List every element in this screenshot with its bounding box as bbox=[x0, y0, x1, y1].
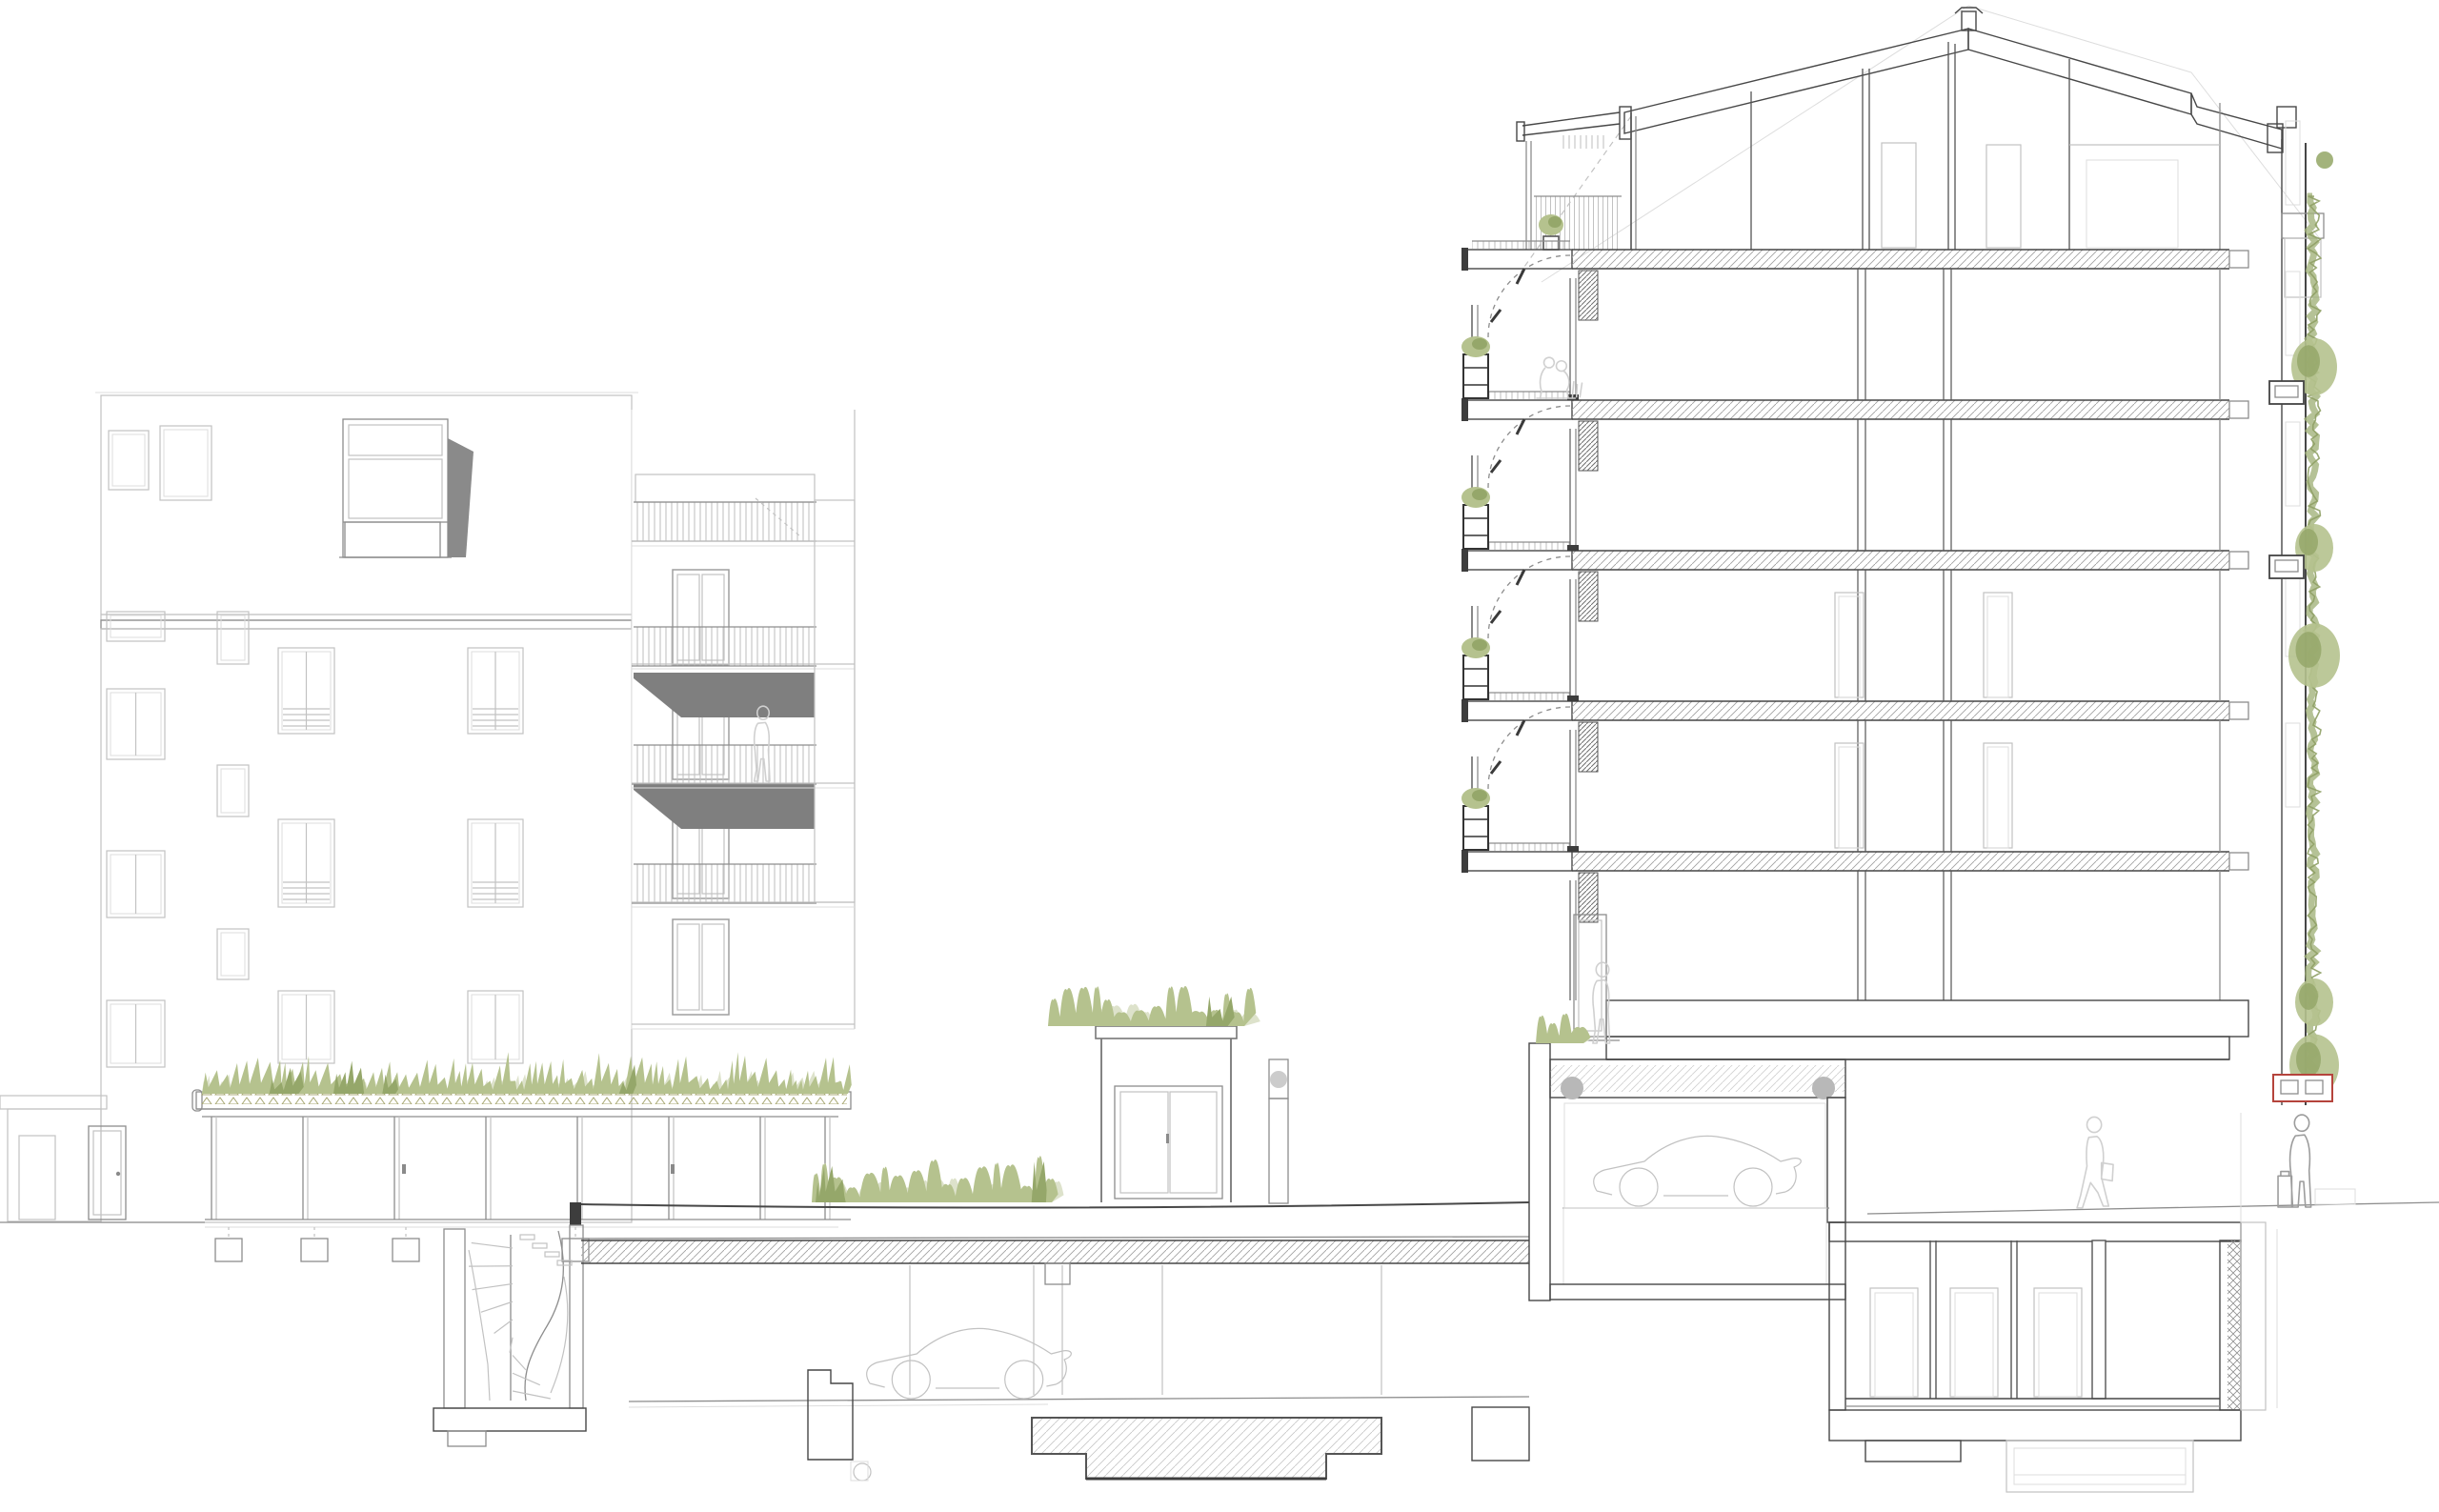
basement-door bbox=[1950, 1288, 1998, 1397]
entrance-annex bbox=[0, 1096, 205, 1222]
ridge-vent bbox=[1955, 8, 1983, 30]
roof-left-slope bbox=[1624, 29, 1968, 133]
balcony bbox=[1461, 255, 1579, 400]
deck-end-wall bbox=[1269, 1099, 1288, 1203]
window bbox=[468, 648, 523, 734]
basement-door bbox=[2034, 1288, 2082, 1397]
door-swing-arc bbox=[1488, 556, 1570, 638]
facade-window bbox=[2286, 723, 2300, 807]
garage-floor bbox=[629, 1397, 1529, 1401]
pad bbox=[301, 1239, 328, 1261]
terrace-canopy bbox=[1522, 112, 1620, 135]
ground-slab bbox=[1606, 1000, 2248, 1059]
building-section-drawing bbox=[0, 0, 2439, 1512]
entry-wall bbox=[1529, 1043, 1550, 1300]
shaft-wall-right bbox=[570, 1225, 583, 1408]
pad bbox=[393, 1239, 419, 1261]
window bbox=[278, 819, 334, 907]
right-facade bbox=[2282, 139, 2333, 1105]
bay-lower-room bbox=[1563, 1208, 1826, 1284]
pavilion-green-roof bbox=[202, 1052, 852, 1094]
new-building bbox=[1461, 6, 2333, 1300]
window bbox=[468, 991, 523, 1063]
attic-siding bbox=[101, 395, 632, 615]
door-swing-arc bbox=[1488, 707, 1570, 789]
window bbox=[107, 1000, 165, 1067]
interior-partitions bbox=[1835, 269, 2220, 1000]
cornice bbox=[101, 615, 632, 620]
facade-window bbox=[2286, 272, 2300, 355]
basement-right bbox=[1829, 1113, 2439, 1492]
car-on-lift bbox=[1594, 1136, 1802, 1206]
entry-planter-shrub bbox=[1536, 1014, 1591, 1043]
door-swing-arc bbox=[1488, 406, 1570, 488]
wing-railing bbox=[632, 745, 816, 784]
garden-room bbox=[1096, 1026, 1237, 1202]
people bbox=[755, 357, 2311, 1208]
garden-room-green-roof bbox=[1048, 986, 1260, 1026]
window bbox=[278, 648, 334, 734]
column bbox=[1579, 421, 1598, 471]
window bbox=[107, 612, 165, 641]
foundation-pad bbox=[1032, 1418, 1381, 1479]
entrance-door bbox=[89, 1126, 126, 1220]
column bbox=[1579, 722, 1598, 772]
annex-door bbox=[19, 1136, 55, 1220]
basement-wall-left bbox=[1829, 1222, 1845, 1410]
wing-railing bbox=[632, 502, 816, 541]
balcony bbox=[1461, 556, 1579, 701]
door-handle bbox=[116, 1172, 120, 1176]
garage-columns bbox=[910, 1265, 1381, 1395]
wing-railing bbox=[632, 627, 816, 666]
roof-loggia bbox=[339, 419, 474, 557]
balcony-planter bbox=[1463, 806, 1488, 850]
bay-roller bbox=[1561, 1077, 1583, 1099]
building-entry bbox=[1529, 915, 1620, 1300]
green-facade-vine bbox=[2288, 196, 2340, 1097]
pedestrian-with-suitcase bbox=[2278, 1115, 2311, 1207]
balcony-planter bbox=[1463, 505, 1488, 549]
car-in-garage bbox=[867, 1328, 1072, 1399]
garage-beam bbox=[1045, 1263, 1070, 1284]
window bbox=[217, 765, 249, 816]
shaft-base-slab bbox=[433, 1408, 586, 1431]
facade-window bbox=[2286, 422, 2300, 506]
retaining-right bbox=[2241, 1222, 2266, 1410]
annex-roof bbox=[0, 1096, 107, 1109]
attic-interior bbox=[1631, 42, 2220, 250]
balcony bbox=[1461, 707, 1579, 852]
column bbox=[1579, 271, 1598, 320]
balcony-planter bbox=[1463, 354, 1488, 398]
facade-planter-box bbox=[2269, 555, 2304, 578]
window bbox=[278, 991, 334, 1063]
spiral-stair bbox=[469, 1231, 572, 1401]
roof-right-break bbox=[2191, 93, 2282, 149]
basement-floor-slab bbox=[1829, 1410, 2241, 1441]
wing-railing bbox=[632, 864, 816, 903]
pavilion-glazing bbox=[212, 1117, 830, 1220]
floor-slabs bbox=[1461, 121, 2300, 1000]
garden-room-roof bbox=[1096, 1026, 1237, 1038]
window bbox=[109, 431, 149, 490]
deck-slab bbox=[581, 1240, 1529, 1263]
deck-shrubs bbox=[812, 1156, 1064, 1202]
deck-edge bbox=[570, 1202, 581, 1225]
ground-planter-red bbox=[2273, 1075, 2332, 1101]
window bbox=[107, 689, 165, 759]
door-swing-arc bbox=[1488, 255, 1570, 337]
glazing-handle bbox=[402, 1164, 406, 1174]
basement-roof-slab bbox=[1829, 1222, 2241, 1241]
column bbox=[1579, 572, 1598, 621]
attic-window bbox=[2086, 160, 2178, 248]
ground-floor-glazing bbox=[1570, 880, 1576, 1000]
retaining-wall bbox=[808, 1370, 853, 1460]
window bbox=[217, 929, 249, 979]
bay-wall-right bbox=[1827, 1098, 1845, 1222]
envelope-outline bbox=[1542, 6, 2321, 286]
window bbox=[160, 426, 212, 500]
deck-top-edge bbox=[581, 1202, 1529, 1208]
facade-window bbox=[2286, 121, 2300, 205]
window bbox=[217, 612, 249, 664]
underground-garage bbox=[629, 1263, 1529, 1481]
glazing-handle bbox=[671, 1164, 675, 1174]
roof-right-slope bbox=[1968, 29, 2191, 114]
balcony bbox=[1461, 406, 1579, 551]
shaft-wall-left bbox=[444, 1229, 465, 1408]
bay-roller bbox=[1812, 1077, 1835, 1099]
basement-doors bbox=[1870, 1288, 2082, 1397]
garage-end-foundation bbox=[1472, 1407, 1529, 1461]
courtyard-pavilion bbox=[192, 1090, 851, 1261]
pedestrian-with-bag bbox=[2077, 1117, 2113, 1207]
attic-door bbox=[1882, 143, 1916, 248]
window bbox=[468, 819, 523, 907]
attic-door bbox=[1986, 145, 2021, 248]
basement-partition bbox=[2092, 1240, 2106, 1399]
balcony-wing bbox=[632, 410, 855, 1029]
balcony-planter bbox=[1463, 655, 1488, 699]
wing-door bbox=[673, 919, 729, 1015]
facade bbox=[101, 629, 632, 1222]
pad bbox=[215, 1239, 242, 1261]
basement-door bbox=[1870, 1288, 1918, 1397]
drawing-sheet bbox=[0, 0, 2439, 1512]
facade-planter-box bbox=[2269, 381, 2304, 404]
window bbox=[107, 851, 165, 917]
loggia-shadow bbox=[448, 438, 474, 557]
